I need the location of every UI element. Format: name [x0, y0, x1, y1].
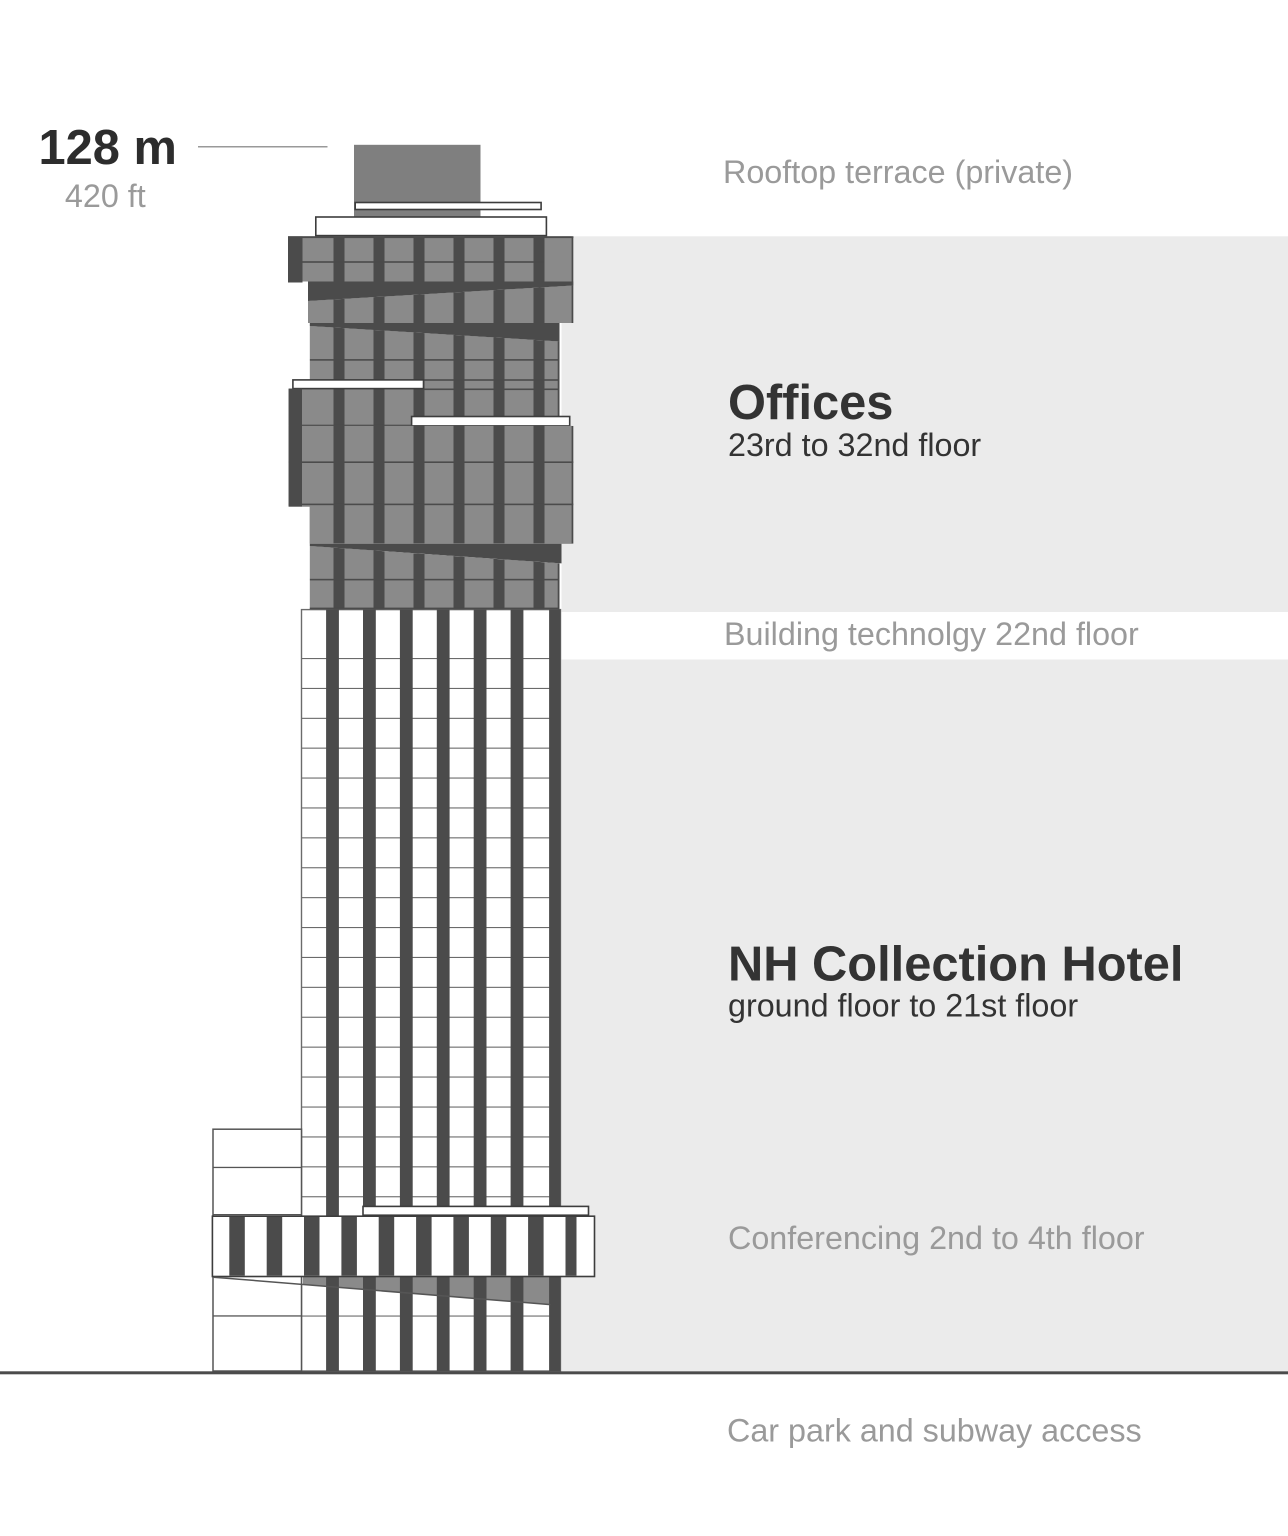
svg-text:Rooftop terrace (private): Rooftop terrace (private)	[723, 154, 1073, 190]
svg-text:ground floor to 21st floor: ground floor to 21st floor	[728, 988, 1078, 1024]
svg-text:23rd to 32nd floor: 23rd to 32nd floor	[728, 427, 981, 463]
svg-text:NH Collection Hotel: NH Collection Hotel	[728, 938, 1183, 992]
svg-text:420 ft: 420 ft	[65, 178, 146, 214]
svg-text:Offices: Offices	[728, 376, 893, 430]
svg-text:Conferencing 2nd to 4th floor: Conferencing 2nd to 4th floor	[728, 1220, 1145, 1256]
svg-text:128 m: 128 m	[39, 121, 177, 175]
svg-text:Car park and subway access: Car park and subway access	[727, 1413, 1142, 1449]
svg-text:Building technolgy 22nd floor: Building technolgy 22nd floor	[724, 616, 1139, 652]
